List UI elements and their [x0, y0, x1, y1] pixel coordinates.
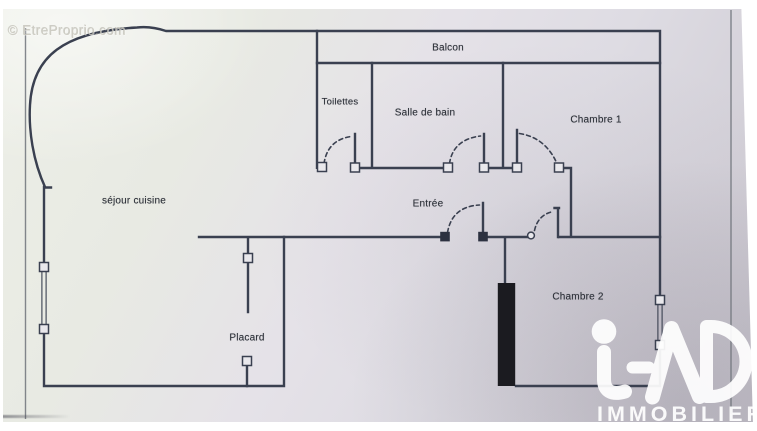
paper-edge-shadow [0, 415, 70, 418]
photo-border-left [0, 0, 3, 431]
iad-logo-mark [0, 0, 757, 431]
photo-border-bottom [0, 422, 757, 431]
floorplan-photo: © EtreProprio.com [0, 0, 757, 431]
photo-border-top [0, 0, 757, 9]
